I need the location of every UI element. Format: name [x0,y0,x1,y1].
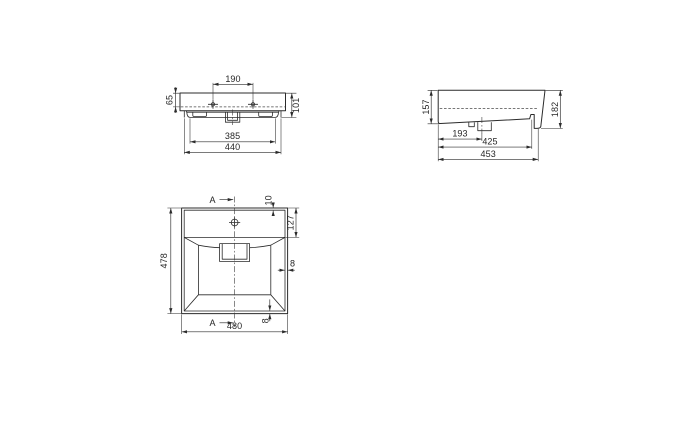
side-view: 157 182 193 425 453 [421,90,563,161]
faucet-hole-mark-right [248,100,258,109]
dim-label-overall-width: 480 [227,321,242,331]
dim-label-total-depth: 453 [481,149,496,159]
dim-label-side-front-height: 157 [421,99,431,114]
dim-label-overall-depth: 478 [159,253,169,268]
technical-drawing: 190 65 101 385 440 157 182 [0,0,700,440]
front-recess-left [193,112,207,116]
plan-view: A A 478 480 10 127 8 8 [159,195,299,334]
dim-label-deck-depth: 127 [285,215,295,230]
faucet-hole-mark-left [208,100,218,109]
dim-label-hole-spacing: 190 [225,74,240,84]
front-view: 190 65 101 385 440 [164,74,301,154]
drawing-canvas: 190 65 101 385 440 157 182 [0,0,700,440]
side-drain-trap [469,122,492,131]
dim-label-side-wall: 8 [290,259,295,269]
dim-label-front-height: 101 [291,98,301,113]
dim-label-top-rim: 10 [264,195,274,205]
section-marker-top: A [209,195,215,205]
dim-label-drain-from-front: 193 [452,128,467,138]
dim-label-back-height: 182 [550,102,560,117]
dim-label-bottom-wall: 8 [260,318,270,323]
section-marker-bottom: A [209,318,215,328]
dim-label-skirt-width: 440 [225,142,240,152]
dim-label-recess-depth: 425 [482,136,497,146]
front-recess-right [259,112,273,116]
dim-label-underbody-width: 385 [225,131,240,141]
front-outline [180,93,286,111]
dim-label-rim-to-waterline: 65 [164,95,174,105]
